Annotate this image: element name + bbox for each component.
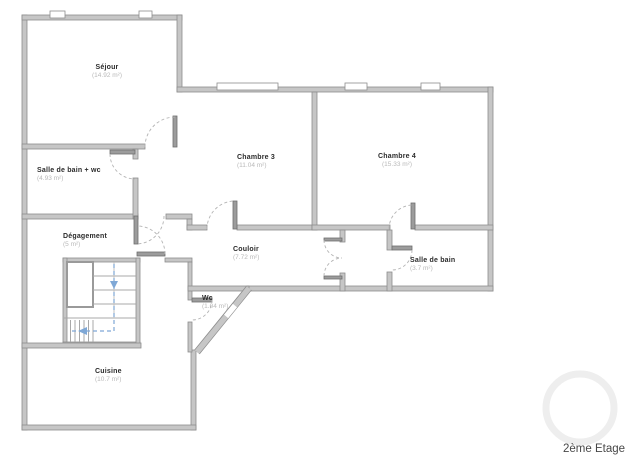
room-name: Chambre 3: [237, 153, 275, 162]
room-name: Wc: [202, 294, 228, 303]
room-area: (5 m²): [63, 241, 107, 249]
room-area: (7.72 m²): [233, 254, 259, 262]
room-name: Dégagement: [63, 232, 107, 241]
room-area: (11.04 m²): [237, 162, 275, 170]
room-label-cuisine: Cuisine (10.7 m²): [95, 367, 122, 384]
room-area: (3.7 m²): [410, 265, 455, 273]
room-label-salle-de-bain: Salle de bain (3.7 m²): [410, 256, 455, 273]
room-name: Salle de bain: [410, 256, 455, 265]
room-area: (4.93 m²): [37, 175, 101, 183]
room-name: Cuisine: [95, 367, 122, 376]
stair-down-arrow-icon: [110, 281, 118, 289]
room-area: (10.7 m²): [95, 376, 122, 384]
room-area: (1.04 m²): [202, 303, 228, 311]
door-leaves: [110, 116, 415, 302]
room-name: Couloir: [233, 245, 259, 254]
room-label-couloir: Couloir (7.72 m²): [233, 245, 259, 262]
floor-level-label: 2ème Etage: [563, 443, 625, 455]
room-label-salle-de-bain-wc: Salle de bain + wc (4.93 m²): [37, 166, 101, 183]
room-label-degagement: Dégagement (5 m²): [63, 232, 107, 249]
room-label-chambre-4: Chambre 4 (15.33 m²): [357, 152, 437, 169]
watermark-logo: [546, 374, 614, 442]
room-label-wc: Wc (1.04 m²): [202, 294, 228, 311]
room-name: Séjour: [72, 63, 142, 72]
room-label-sejour: Séjour (14.92 m²): [72, 63, 142, 80]
room-name: Salle de bain + wc: [37, 166, 101, 175]
staircase: [64, 262, 136, 342]
room-area: (15.33 m²): [357, 161, 437, 169]
floor-plan: Séjour (14.92 m²) Salle de bain + wc (4.…: [0, 0, 640, 467]
room-label-chambre-3: Chambre 3 (11.04 m²): [237, 153, 275, 170]
room-area: (14.92 m²): [72, 72, 142, 80]
room-name: Chambre 4: [357, 152, 437, 161]
